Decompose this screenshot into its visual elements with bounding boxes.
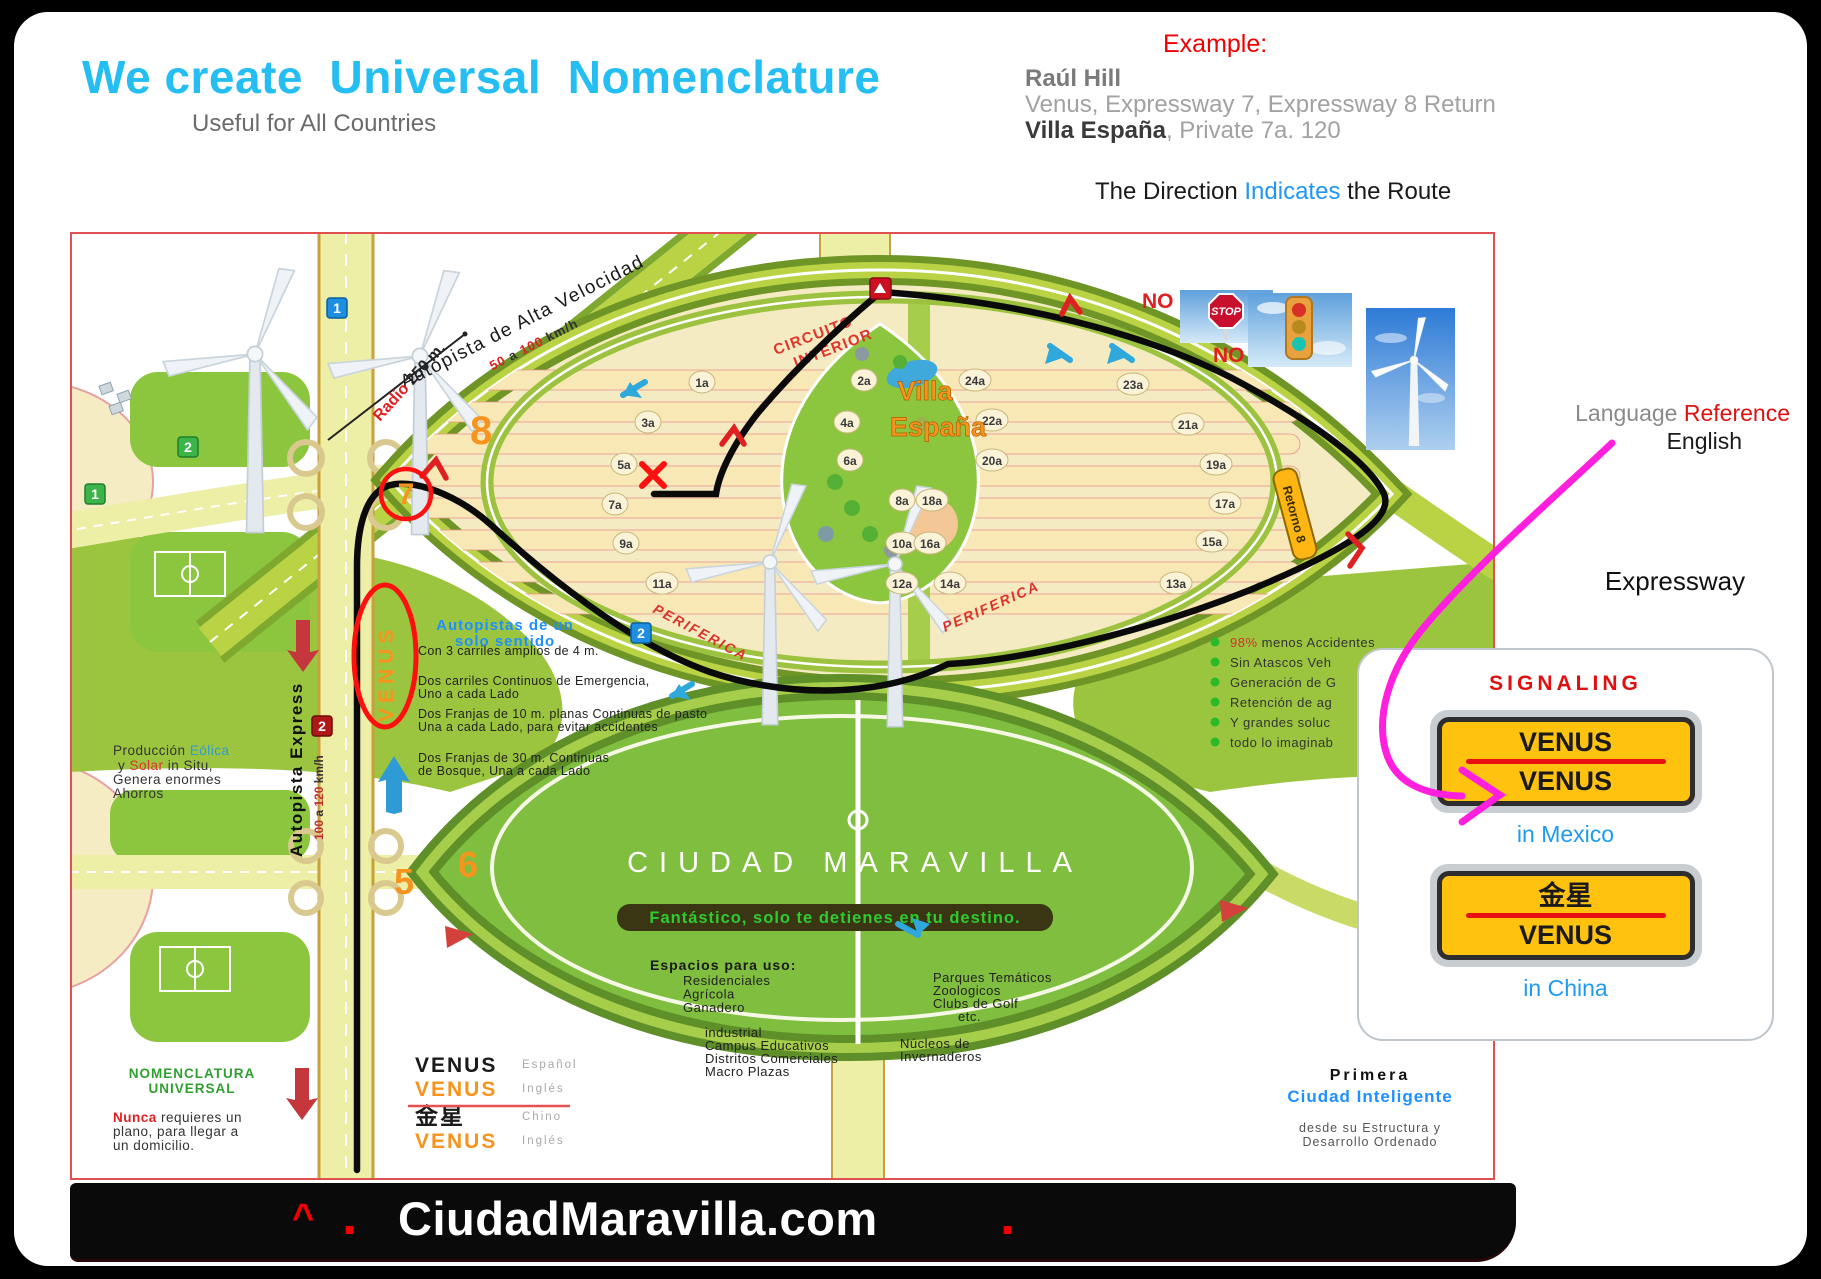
svg-text:Producción Eólica: Producción Eólica <box>113 743 230 758</box>
no-label: NO <box>1142 290 1174 313</box>
route-number-8: 8 <box>470 409 492 453</box>
nomenclatura-1: NOMENCLATURA <box>129 1066 256 1081</box>
lang-name: Español <box>522 1059 578 1071</box>
svg-text:STOP: STOP <box>1211 306 1241 318</box>
svg-text:y Solar in Situ,: y Solar in Situ, <box>118 758 213 773</box>
street-label: 20a <box>982 454 1002 468</box>
ciudad-maravilla-title: CIUDAD MARAVILLA <box>627 847 1083 879</box>
lang-name: Chino <box>522 1111 562 1123</box>
example-name: Raúl Hill <box>1025 66 1496 92</box>
street-label: 18a <box>922 494 942 508</box>
sign-divider <box>1466 913 1666 918</box>
expressway-label: Expressway <box>1560 566 1790 597</box>
primera-label: Primera <box>1330 1067 1411 1084</box>
svg-text:2: 2 <box>637 625 645 641</box>
bullet-icon <box>1211 738 1220 747</box>
traffic-light-photo <box>1248 293 1352 367</box>
road-sign-mexico: VENUS VENUS <box>1430 710 1702 813</box>
ciudad-inteligente-label: Ciudad Inteligente <box>1287 1087 1452 1106</box>
wind-turbine-photo <box>1366 308 1455 450</box>
signaling-panel: SIGNALING VENUS VENUS in Mexico 金星 VENUS… <box>1357 648 1774 1041</box>
street-label: 2a <box>857 374 871 388</box>
street-label: 13a <box>1166 577 1186 591</box>
street-label: 8a <box>895 494 909 508</box>
benefit-item: todo lo imaginab <box>1230 735 1333 750</box>
svg-text:Nunca requieres un: Nunca requieres un <box>113 1110 242 1125</box>
svg-text:1: 1 <box>91 486 99 502</box>
bullet-icon <box>1211 638 1220 647</box>
street-label: 1a <box>695 376 709 390</box>
street-label: 19a <box>1206 458 1226 472</box>
oneway-title-1: Autopistas de un <box>436 617 574 634</box>
street-label: 3a <box>641 416 655 430</box>
street-label: 5a <box>617 458 631 472</box>
website-url[interactable]: CiudadMaravilla.com <box>398 1191 878 1246</box>
desde-line-1: desde su Estructura y <box>1299 1121 1441 1135</box>
desde-line-2: Desarrollo Ordenado <box>1302 1135 1437 1149</box>
footer-bar: ^ . CiudadMaravilla.com . <box>70 1183 1516 1262</box>
example-route-line: Venus, Expressway 7, Expressway 8 Return <box>1025 92 1496 118</box>
signaling-title: SIGNALING <box>1359 672 1772 696</box>
benefit-item: Sin Atascos Veh <box>1230 655 1331 670</box>
footer-dot: . <box>342 1185 357 1247</box>
oneway-line: Una a cada Lado, para evitar accidentes <box>418 720 658 734</box>
direction-caption: The Direction Indicates the Route <box>1095 178 1451 206</box>
street-label: 21a <box>1178 418 1198 432</box>
use-item: Ganadero <box>683 1000 745 1015</box>
street-label: 17a <box>1215 497 1235 511</box>
street-label: 12a <box>892 577 912 591</box>
svg-text:5: 5 <box>394 861 414 902</box>
lang-name: Inglés <box>522 1135 565 1147</box>
benefit-item: Retención de ag <box>1230 695 1332 710</box>
oneway-line: Con 3 carriles amplios de 4 m. <box>418 644 599 658</box>
benefits-list: Sin Atascos VehGeneración de GRetención … <box>1211 655 1337 750</box>
use-item: etc. <box>958 1009 981 1024</box>
use-item: Invernaderos <box>900 1049 982 1064</box>
slogan-text: Fantástico, solo te detienes en tu desti… <box>649 909 1020 927</box>
footer-caret: ^ <box>292 1197 314 1240</box>
sign-china-top: 金星 <box>1452 880 1680 912</box>
bullet-icon <box>1211 678 1220 687</box>
example-address-block: Raúl Hill Venus, Expressway 7, Expresswa… <box>1025 66 1496 144</box>
svg-text:6: 6 <box>458 844 478 885</box>
sign-mexico-bottom: VENUS <box>1452 765 1680 797</box>
oneway-line: Dos carriles Continuos de Emergencia, <box>418 674 650 688</box>
street-label: 9a <box>619 537 633 551</box>
street-label: 14a <box>940 577 960 591</box>
svg-text:un domicilio.: un domicilio. <box>113 1138 195 1153</box>
page-title: We create Universal Nomenclature <box>82 50 880 104</box>
street-label: 4a <box>840 416 854 430</box>
street-label: 10a <box>892 537 912 551</box>
oneway-line: de Bosque, Una a cada Lado <box>418 764 590 778</box>
svg-text:2: 2 <box>318 718 326 734</box>
city-map: CIUDAD MARAVILLA Fantástico, solo te det… <box>70 232 1495 1180</box>
page-subtitle: Useful for All Countries <box>192 110 436 138</box>
road-sign-china: 金星 VENUS <box>1430 864 1702 967</box>
lang-word: VENUS <box>415 1130 497 1153</box>
no-label: NO <box>1213 344 1245 367</box>
lang-word: VENUS <box>415 1078 497 1101</box>
south-road-stub <box>832 1042 884 1180</box>
park <box>130 932 310 1042</box>
svg-text:7: 7 <box>398 478 415 511</box>
footer-dot: . <box>1000 1185 1015 1247</box>
street-label: 23a <box>1123 378 1143 392</box>
svg-text:Ahorros: Ahorros <box>113 786 164 801</box>
example-destination-line: Villa España, Private 7a. 120 <box>1025 118 1496 144</box>
sign-mexico-top: VENUS <box>1452 726 1680 758</box>
benefit-item: 98% menos Accidentes <box>1230 635 1375 650</box>
svg-text:1: 1 <box>333 300 341 316</box>
uses-list-4: Núcleos deInvernaderos <box>900 1036 982 1064</box>
street-label: 7a <box>608 498 622 512</box>
lang-name: Inglés <box>522 1083 565 1095</box>
oneway-line: Dos Franjas de 10 m. planas Continuas de… <box>418 707 707 721</box>
bullet-icon <box>1211 658 1220 667</box>
svg-text:Genera enormes: Genera enormes <box>113 772 221 787</box>
oneway-line: Dos Franjas de 30 m. Continuas <box>418 751 609 765</box>
street-label: 15a <box>1202 535 1222 549</box>
example-label: Example: <box>1163 30 1267 59</box>
use-item: Macro Plazas <box>705 1064 790 1079</box>
express-speed-label: 100 a 120 km/h <box>312 755 326 840</box>
venus-vertical-label: VENUS <box>375 625 398 722</box>
nomenclatura-2: UNIVERSAL <box>148 1081 235 1096</box>
benefit-item: Y grandes soluc <box>1230 715 1331 730</box>
street-label: 16a <box>920 537 940 551</box>
oneway-line: Uno a cada Lado <box>418 687 519 701</box>
villa-label-2: España <box>890 412 987 442</box>
villa-label-1: Villa <box>897 376 953 406</box>
benefit-item: Generación de G <box>1230 675 1337 690</box>
svg-text:plano, para llegar a: plano, para llegar a <box>113 1124 239 1139</box>
lang-word: VENUS <box>415 1054 497 1077</box>
street-label: 24a <box>965 374 985 388</box>
sign-divider <box>1466 759 1666 764</box>
mexico-caption: in Mexico <box>1359 821 1772 848</box>
sign-china-bottom: VENUS <box>1452 919 1680 951</box>
espacios-title: Espacios para uso: <box>650 957 796 973</box>
china-caption: in China <box>1359 975 1772 1002</box>
autopista-express-label: Autopista Express <box>287 682 306 857</box>
street-label: 6a <box>843 454 857 468</box>
bullet-icon <box>1211 698 1220 707</box>
bullet-icon <box>1211 718 1220 727</box>
street-label: 11a <box>652 577 672 591</box>
svg-text:2: 2 <box>184 439 192 455</box>
